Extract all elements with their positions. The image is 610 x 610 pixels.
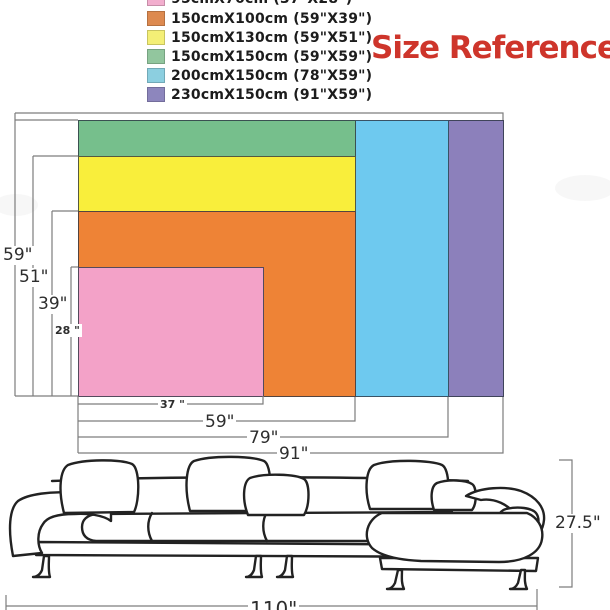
size-reference-infographic: 95cmX70cm (37"X28") 150cmX100cm (59"X39"…	[0, 0, 610, 610]
sofa-illustration	[10, 457, 544, 589]
width-label-91: 91"	[277, 445, 310, 464]
sofa-chaise-seat	[367, 513, 543, 562]
width-label-37: 37 "	[158, 398, 187, 411]
sofa-back-cushion	[61, 460, 139, 513]
height-label-51: 51"	[17, 268, 50, 287]
height-label-59: 59"	[1, 246, 34, 265]
sofa-small-pillow	[244, 475, 308, 515]
lines-and-sofa-overlay	[0, 0, 610, 610]
sofa-leg	[33, 556, 50, 577]
width-label-79: 79"	[247, 429, 280, 448]
width-label-59: 59"	[203, 413, 236, 432]
height-label-28: 28 "	[53, 324, 82, 337]
watermark	[555, 175, 610, 201]
top-extension-line	[15, 113, 503, 120]
sofa-leg	[246, 556, 262, 577]
height-label-39: 39"	[36, 295, 69, 314]
sofa-leg	[387, 570, 404, 589]
sofa-height-label: 27.5"	[553, 514, 603, 533]
sofa-leg	[510, 570, 527, 589]
watermark	[0, 194, 38, 216]
sofa-width-label: 110"	[248, 598, 299, 610]
sofa-leg	[277, 556, 293, 577]
